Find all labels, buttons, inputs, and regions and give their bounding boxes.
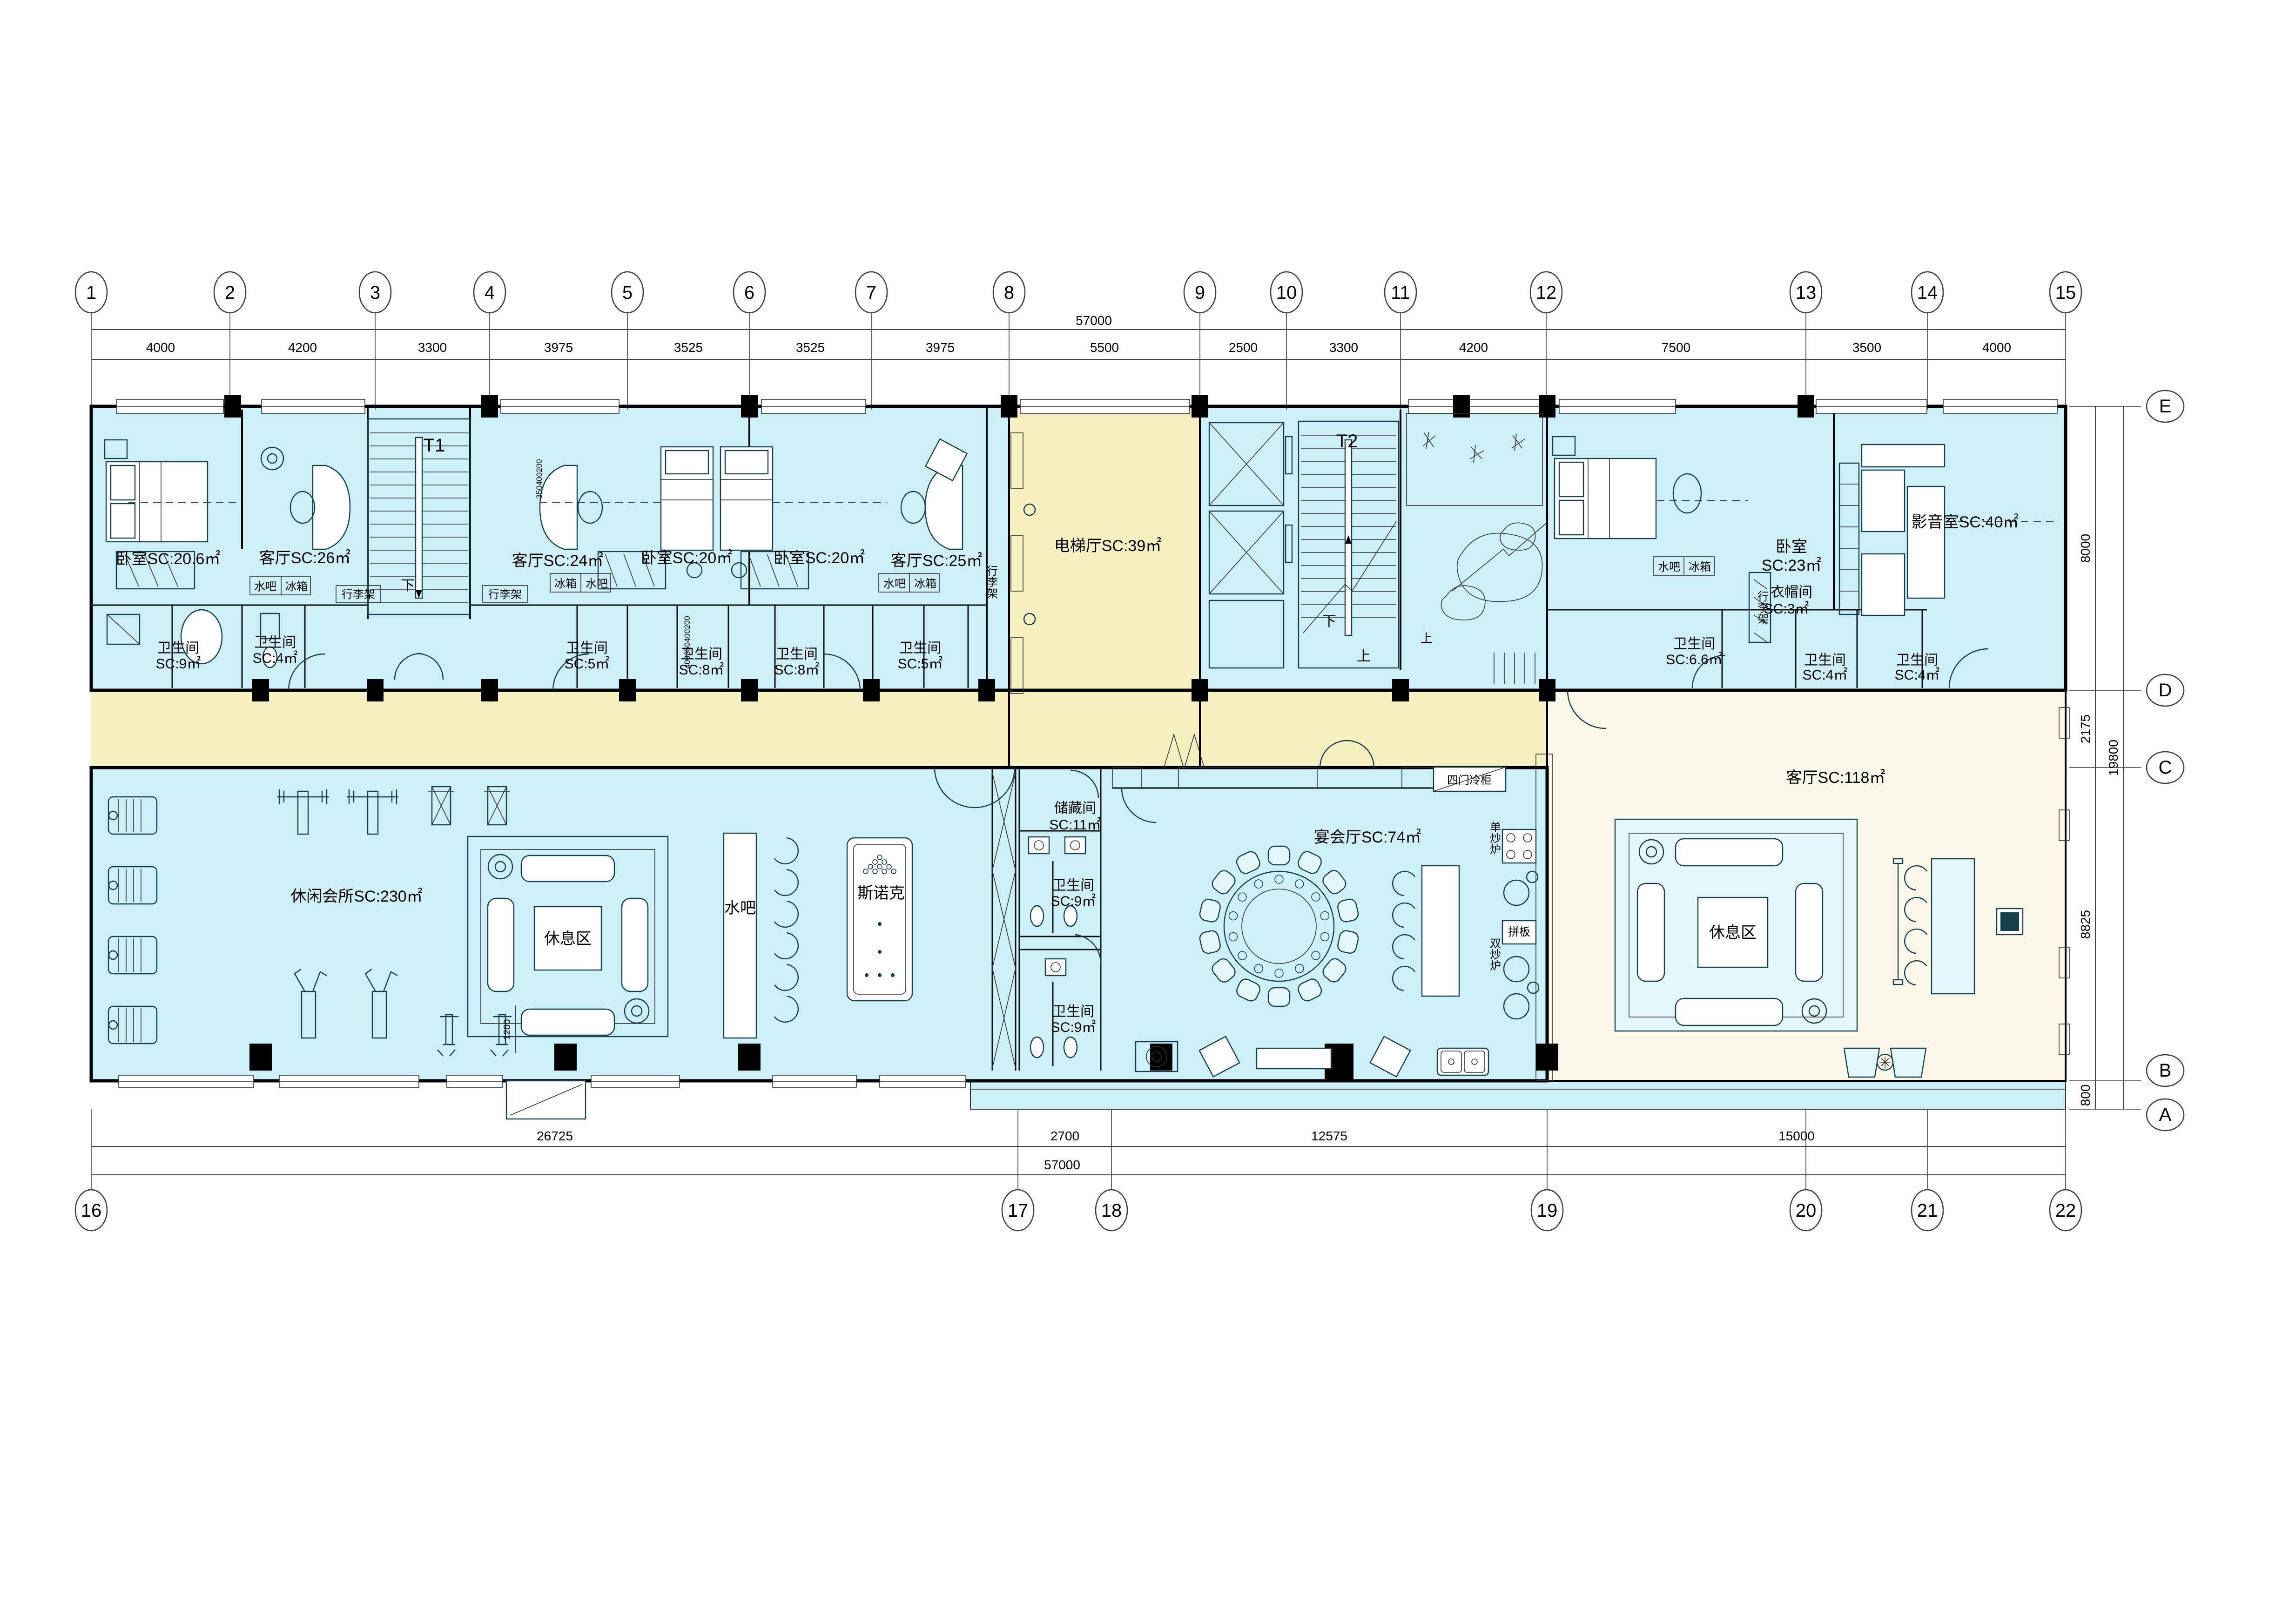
- bath-label-area: SC:4㎡: [253, 651, 298, 666]
- entrance-vestibule: [506, 1081, 586, 1119]
- grid-bubble-label: 3: [370, 283, 380, 303]
- dim-label: 26725: [537, 1129, 573, 1143]
- grid-bubble-label: 2: [225, 283, 235, 303]
- bath-label-area: SC:4㎡: [1803, 667, 1848, 683]
- dim-label: 3975: [926, 340, 955, 355]
- up-label: 上: [1357, 649, 1371, 664]
- wok-single-tag: 单炒炉: [1488, 821, 1501, 855]
- dim-label: 15000: [1778, 1129, 1815, 1143]
- bottom-dim-values: 26725 2700 12575 15000 57000: [537, 1129, 1815, 1172]
- bath-label: 卫生间: [1896, 653, 1938, 668]
- floor-plan-drawing: 1 2 3 4 5 6 7 8 9 10 11 12 13 14 15 4000…: [0, 0, 2296, 1624]
- fridge-tag: 冰箱: [554, 578, 577, 590]
- grid-bubble-label: 19: [1537, 1200, 1558, 1221]
- snooker-label: 斯诺克: [857, 884, 905, 902]
- stair-label: T1: [424, 435, 445, 456]
- zone-corridor: [91, 690, 1547, 768]
- rest-area-label: 休息区: [544, 930, 592, 948]
- bath-label-area: SC:4㎡: [1895, 667, 1940, 683]
- dim-label: 3525: [796, 340, 825, 355]
- grid-bubble-label: A: [2159, 1105, 2172, 1125]
- board-tag: 拼板: [1508, 926, 1530, 938]
- grid-bubble-label: 13: [1796, 283, 1817, 303]
- snooker-table: 斯诺克: [847, 838, 912, 1001]
- grid-bubble-label: 10: [1276, 283, 1297, 303]
- water-bar-tag: 水吧: [586, 578, 608, 590]
- right-dim-values: 8000 2175 8825 800 19800: [2078, 534, 2121, 1106]
- luggage-rack-tag: 行李架: [1756, 591, 1769, 624]
- dim-label: 7500: [1662, 340, 1690, 355]
- room-label-cloakroom-area: SC:3㎡: [1764, 601, 1809, 617]
- grid-bubble-label: 12: [1536, 283, 1557, 303]
- zone-bottom-wing: [91, 768, 1547, 1081]
- grid-bubble-label: 11: [1391, 283, 1410, 303]
- grid-bubble-label: 15: [2055, 283, 2076, 303]
- bath-label-area: SC:5㎡: [565, 656, 610, 672]
- dim-label: 2175: [2078, 714, 2093, 743]
- bath-label-area: SC:9㎡: [156, 656, 201, 672]
- dim-label: 800: [2078, 1085, 2093, 1106]
- bath-label-area: SC:6.6㎡: [1666, 652, 1723, 667]
- dim-label: 3975: [544, 340, 573, 355]
- room-label-bedroom: 卧室: [1776, 538, 1807, 556]
- bath-label: 卫生间: [1052, 1004, 1094, 1019]
- dim-label: 12575: [1311, 1129, 1347, 1143]
- bath-label-area: SC:5㎡: [898, 656, 943, 672]
- bath-label: 卫生间: [1673, 636, 1715, 652]
- room-label-living: 客厅SC:25㎡: [891, 552, 983, 570]
- dim-label: 4000: [146, 340, 175, 355]
- down-label: 下: [1322, 614, 1336, 629]
- bath-label-area: SC:8㎡: [679, 662, 724, 678]
- dim-label: 3300: [418, 340, 447, 355]
- bath-label-area: SC:8㎡: [774, 662, 820, 678]
- dim-label: 3500: [1852, 340, 1881, 355]
- room-label-bedroom: 卧室SC:20.6㎡: [116, 550, 221, 568]
- room-label-bedroom: 卧室SC:20㎡: [641, 549, 733, 567]
- water-bar-label: 水吧: [724, 899, 756, 917]
- right-total-dim: 19800: [2106, 740, 2121, 776]
- grid-bubble-label: 4: [485, 283, 495, 303]
- dim-label: 3525: [674, 340, 703, 355]
- grid-bubble-label: 16: [81, 1200, 102, 1221]
- room-label-av: 影音室SC:40㎡: [1912, 513, 2019, 531]
- grid-bubble-label: 9: [1195, 283, 1205, 303]
- bath-label: 卫生间: [899, 640, 941, 656]
- bath-label: 卫生间: [254, 635, 296, 650]
- dim-label: 2700: [1050, 1129, 1079, 1143]
- room-label-storage: 储藏间: [1054, 801, 1096, 816]
- bath-label: 卫生间: [566, 640, 608, 656]
- fridge-tag: 冰箱: [1689, 561, 1711, 573]
- wok-double-tag: 双炒炉: [1488, 937, 1501, 971]
- luggage-rack-tag: 行李架: [488, 588, 522, 601]
- dim-label: 4200: [288, 340, 317, 355]
- room-label-cloakroom: 衣帽间: [1771, 585, 1812, 600]
- room-label-storage-area: SC:11㎡: [1049, 817, 1101, 833]
- grid-bubble-label: 17: [1008, 1200, 1029, 1221]
- grid-bubble-label: E: [2159, 396, 2172, 417]
- dim-label: 8000: [2078, 534, 2093, 563]
- room-label-living: 客厅SC:26㎡: [259, 549, 351, 567]
- dim-label: 2500: [1229, 340, 1258, 355]
- grid-bubble-label: 22: [2055, 1200, 2076, 1221]
- room-label-club: 休闲会所SC:230㎡: [290, 888, 422, 905]
- dim-label: 3300: [1329, 340, 1358, 355]
- bath-label: 卫生间: [1804, 653, 1846, 668]
- bath-label-area: SC:9㎡: [1051, 894, 1096, 909]
- bath-label: 卫生间: [776, 647, 818, 662]
- rest-area-label: 休息区: [1709, 924, 1757, 942]
- zone-elevator-hall: [1009, 406, 1200, 768]
- grid-lines-right: [2069, 406, 2141, 1109]
- grid-bubble-label: 21: [1917, 1200, 1938, 1221]
- zone-terrace: [970, 1081, 2066, 1109]
- grid-bubble-label: 20: [1796, 1200, 1817, 1221]
- grid-bubble-label: 5: [622, 283, 633, 303]
- room-label-bedroom: 卧室SC:20㎡: [774, 549, 865, 567]
- grid-bubbles-right: E D C B A: [2147, 391, 2184, 1131]
- grid-bubble-label: D: [2159, 680, 2172, 701]
- grid-bubble-label: B: [2159, 1060, 2172, 1081]
- grid-bubble-label: C: [2159, 757, 2172, 778]
- top-total-dim: 57000: [1076, 313, 1112, 328]
- grid-lines-bottom: [91, 1109, 2066, 1190]
- grid-bubble-label: 18: [1101, 1200, 1122, 1221]
- grid-bubble-label: 1: [86, 283, 96, 303]
- bath-label: 卫生间: [157, 640, 199, 656]
- room-label-banquet: 宴会厅SC:74㎡: [1314, 829, 1421, 846]
- dim-label: 4000: [1982, 340, 2011, 355]
- dim-label: 5500: [1090, 340, 1119, 355]
- luggage-rack-tag: 行李架: [985, 565, 998, 599]
- up-label-rock: 上: [1421, 631, 1433, 645]
- bottom-total-dim: 57000: [1044, 1158, 1080, 1172]
- grid-bubble-label: 8: [1004, 283, 1014, 303]
- floor-plan-canvas: 1 2 3 4 5 6 7 8 9 10 11 12 13 14 15 4000…: [0, 0, 2296, 1624]
- freezer-tag: 四门冷柜: [1447, 774, 1492, 787]
- top-dim-values: 4000 4200 3300 3975 3525 3525 3975 5500 …: [146, 313, 2011, 355]
- main-rest-area: 休息区: [1615, 819, 1857, 1031]
- dim-label: 8825: [2078, 910, 2093, 939]
- water-bar-tag: 水吧: [1658, 561, 1680, 573]
- grid-bubbles-top: 1 2 3 4 5 6 7 8 9 10 11 12 13 14 15: [75, 272, 2081, 313]
- grid-bubble-label: 14: [1917, 283, 1938, 303]
- grid-bubble-label: 7: [866, 283, 876, 303]
- room-label-elevator-hall: 电梯厅SC:39㎡: [1054, 537, 1162, 555]
- dim-label: 4200: [1459, 340, 1488, 355]
- room-label-bedroom-area: SC:23㎡: [1762, 557, 1822, 574]
- room-label-living: 客厅SC:24㎡: [512, 552, 604, 570]
- room-label-main-living: 客厅SC:118㎡: [1786, 769, 1885, 787]
- luggage-rack-tag: 行李架: [342, 588, 375, 601]
- dim-chain: 350400200: [535, 459, 544, 499]
- stair-label: T2: [1336, 431, 1358, 451]
- fridge-tag: 冰箱: [285, 580, 308, 593]
- bath-label: 卫生间: [680, 647, 722, 662]
- grid-bubbles-bottom: 16 17 18 19 20 21 22: [75, 1190, 2081, 1231]
- grid-bubble-label: 6: [744, 283, 754, 303]
- water-bar-tag: 水吧: [883, 578, 906, 590]
- fridge-tag: 冰箱: [914, 578, 936, 590]
- bath-label-area: SC:9㎡: [1051, 1020, 1096, 1035]
- water-bar-tag: 水吧: [254, 580, 276, 593]
- bath-label: 卫生间: [1052, 878, 1094, 893]
- down-label: 下: [401, 578, 415, 593]
